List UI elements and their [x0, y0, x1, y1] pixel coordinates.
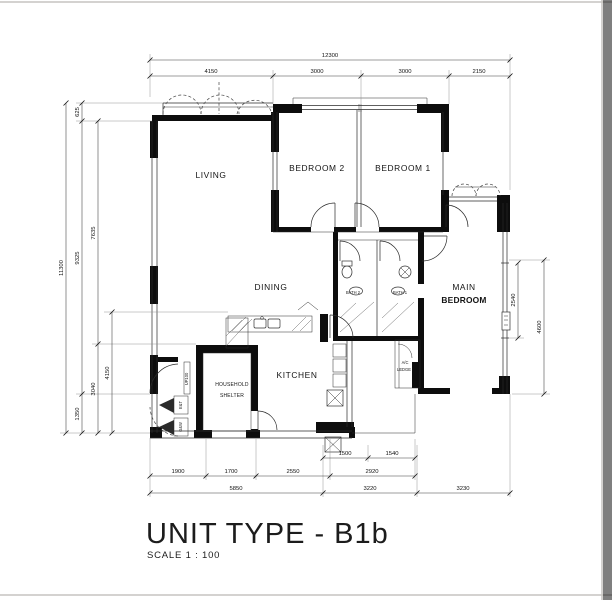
dim-label: 625	[75, 106, 81, 117]
bedroom1-label: BEDROOM 1	[375, 163, 431, 173]
kitchen-label: KITCHEN	[277, 370, 318, 380]
bedroom-windows	[293, 98, 427, 112]
duct-box	[325, 437, 341, 452]
household-shelter-label-line2: SHELTER	[220, 393, 244, 399]
title-block: UNIT TYPE - B1b SCALE 1 : 100	[146, 518, 389, 561]
household-shelter-label-line1: HOUSEHOLD	[215, 382, 249, 388]
dim-label: 3220	[363, 486, 377, 492]
dim-label: 2920	[365, 469, 379, 475]
dim-label: 2550	[286, 469, 300, 475]
kitchen-counter	[228, 316, 312, 332]
dim-label: 4150	[105, 366, 111, 380]
bath1-door	[380, 241, 400, 261]
dim-label: 2540	[511, 293, 517, 307]
window-tag-box	[502, 312, 510, 330]
up100-label: UP100	[184, 372, 189, 385]
dim-label: 1700	[224, 469, 238, 475]
living-bay-window	[163, 82, 273, 115]
dim-label: 7635	[91, 226, 97, 240]
ac-ledge-label-line2: LEDGE	[397, 367, 411, 372]
main-bedroom-label-line1: MAIN	[452, 282, 475, 292]
dim-label: 3040	[91, 382, 97, 396]
unit-type-title: UNIT TYPE - B1b	[146, 518, 389, 550]
dim-label: 1500	[338, 451, 352, 457]
ac-ledge-label-line1: A/C	[402, 360, 409, 365]
casement-arc	[201, 95, 239, 114]
walls	[150, 104, 510, 438]
scan-border	[0, 0, 612, 600]
bath2-door	[340, 241, 360, 261]
extension-lines	[60, 54, 550, 497]
floorplan-page: LIVING BEDROOM 2 BEDROOM 1 MAIN BEDROOM …	[0, 0, 612, 600]
scale-label: SCALE 1 : 100	[147, 550, 220, 561]
et-duct-label: E&T	[178, 401, 183, 409]
dining-label: DINING	[255, 282, 288, 292]
main-bedroom-inner-door	[422, 236, 447, 261]
ac-ledge-door	[398, 344, 412, 358]
dim-label: 11300	[59, 259, 65, 276]
casement-arc	[163, 95, 201, 114]
dim-label: 3000	[398, 69, 412, 75]
dim-label: 1900	[171, 469, 185, 475]
toilet-bowl	[342, 266, 352, 278]
gw-duct-label: G&W	[178, 422, 183, 432]
duct-box	[327, 390, 343, 406]
bedroom2-door	[311, 203, 335, 227]
dim-right: 2540 4600	[511, 258, 547, 397]
structure-lines	[150, 82, 510, 452]
bath2-label: BATH 2	[346, 290, 361, 295]
dim-label: 3000	[310, 69, 324, 75]
bath1-label: BATH 1	[393, 290, 408, 295]
main-bedroom-door	[446, 205, 468, 227]
shelf	[298, 302, 318, 310]
dim-label: 12300	[322, 53, 339, 59]
cistern	[342, 261, 352, 266]
dim-label: 5850	[229, 486, 243, 492]
dim-label: 1350	[75, 407, 81, 421]
shelter-door	[258, 411, 277, 430]
bedroom1-door	[355, 203, 379, 227]
dining-counter	[226, 318, 248, 348]
floorplan-drawing: LIVING BEDROOM 2 BEDROOM 1 MAIN BEDROOM …	[0, 0, 612, 600]
sink-bowl	[268, 319, 280, 328]
bedroom2-label: BEDROOM 2	[289, 163, 345, 173]
dim-label: 9325	[75, 251, 81, 265]
dim-top: 12300 4150 3000 3000 2150	[148, 53, 513, 79]
dim-label: 4150	[204, 69, 218, 75]
dim-label: 2150	[472, 69, 486, 75]
main-bedroom-label-line2: BEDROOM	[441, 295, 486, 305]
main-bedroom-window	[449, 184, 500, 201]
sink-bowl	[254, 319, 266, 328]
louvre-door	[159, 398, 174, 413]
dim-label: 4600	[537, 320, 543, 334]
dimensions: 12300 4150 3000 3000 2150 11300 625 9325	[59, 53, 550, 497]
living-label: LIVING	[195, 170, 226, 180]
dim-label: 1540	[385, 451, 399, 457]
dim-left: 11300 625 9325 1350 7635 3040 4150	[59, 101, 115, 436]
dim-label: 3230	[456, 486, 470, 492]
